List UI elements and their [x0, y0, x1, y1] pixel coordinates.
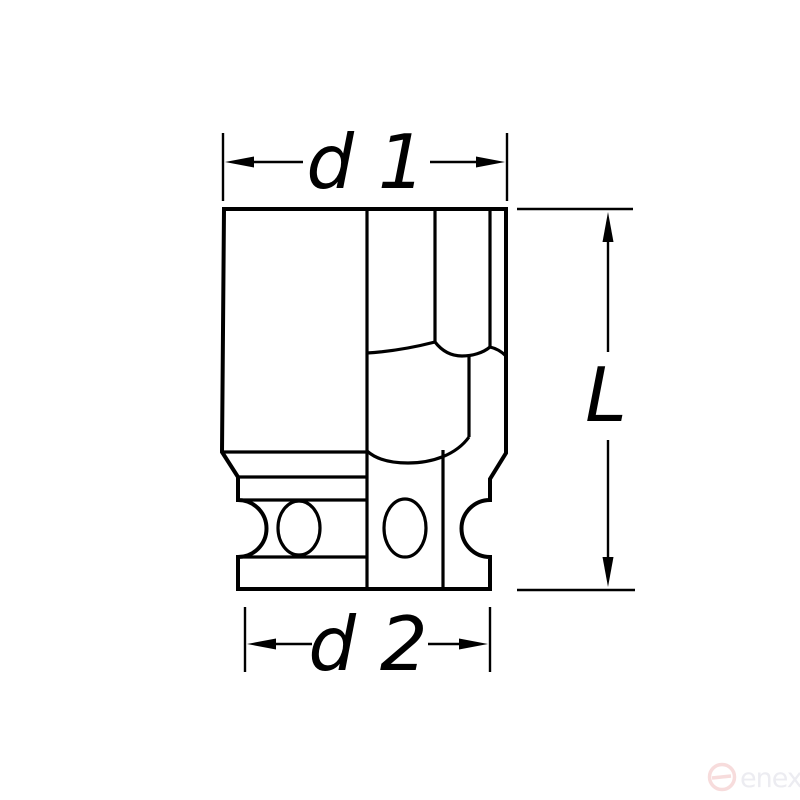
- arrowhead-left-icon: [225, 157, 254, 168]
- arrowhead-down-icon: [603, 557, 614, 587]
- arrowhead-up-icon: [603, 212, 614, 242]
- socket-technical-drawing: d 1 d 2 L enex: [0, 0, 800, 800]
- dimension-label-d1: d 1: [306, 118, 425, 206]
- dimension-label-length: L: [585, 351, 627, 439]
- dimension-labels: d 1 d 2 L: [306, 118, 626, 688]
- hex-recess-bottom-right-curve: [490, 347, 506, 356]
- dimension-label-d2: d 2: [308, 600, 427, 688]
- drawing-linework: [222, 133, 635, 672]
- dimension-arrowheads: [225, 157, 614, 650]
- neck-transition-curve: [367, 437, 469, 463]
- cross-hole-front-view: [384, 499, 426, 557]
- cross-hole-side-view: [278, 501, 320, 555]
- hex-recess-bottom-left-curve: [367, 342, 435, 353]
- watermark: enex: [710, 763, 800, 794]
- enex-logo-icon: [710, 765, 735, 790]
- socket-body-outline: [222, 209, 506, 589]
- arrowhead-right-icon: [476, 157, 505, 168]
- hex-recess-bottom-mid-curve: [435, 342, 490, 356]
- arrowhead-right-icon: [459, 639, 488, 650]
- drawing-canvas: d 1 d 2 L enex: [0, 0, 800, 800]
- watermark-text: enex: [740, 763, 800, 794]
- arrowhead-left-icon: [247, 639, 276, 650]
